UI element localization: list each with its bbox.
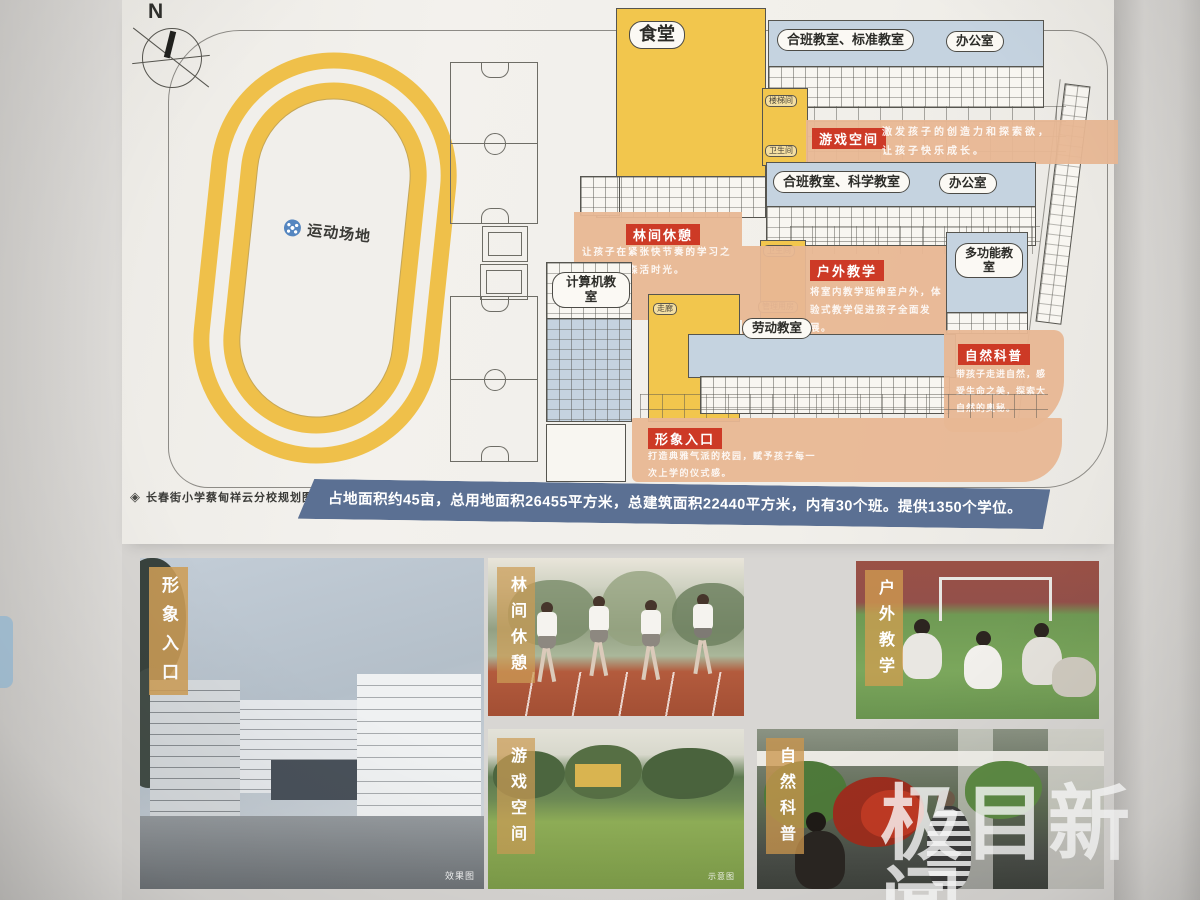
entrance-zone-title: 形象入口 — [648, 428, 722, 449]
photo-forest-label: 林间休憩 — [497, 567, 535, 683]
classroom-facade — [768, 66, 1044, 108]
compass-icon: N — [134, 2, 218, 98]
multi-room-building: 多功能教室 — [946, 232, 1028, 314]
building-right-wing — [357, 674, 481, 830]
small-building — [580, 176, 620, 216]
court-key — [481, 208, 509, 224]
photo-entrance: 形象入口 效果图 — [140, 558, 484, 889]
court-square — [480, 264, 528, 300]
photo-forest: 林间休憩 — [488, 558, 744, 716]
outdoor-zone-desc: 将室内教学延伸至户外，体验式教学促进孩子全面发展。 — [810, 284, 945, 338]
photo-nature-label: 自然科普 — [766, 738, 804, 854]
canteen-label: 食堂 — [629, 21, 685, 49]
office-label: 办公室 — [939, 173, 997, 194]
figure-body — [964, 645, 1002, 689]
building-left-wing — [150, 680, 239, 829]
photo-play-label: 游戏空间 — [497, 738, 535, 854]
child-figure — [638, 600, 664, 692]
court-square-inner — [486, 270, 522, 294]
rooftop-units — [640, 394, 1048, 418]
play-zone-desc: 激发孩子的创造力和探索欲，让孩子快乐成长。 — [882, 123, 1062, 161]
outdoor-zone-title: 户外教学 — [810, 260, 884, 281]
figure-leg — [702, 640, 712, 674]
figure-head — [1034, 623, 1049, 638]
figure-skirt — [642, 634, 660, 647]
figure-pants — [694, 628, 712, 638]
gatehouse-building — [546, 424, 626, 482]
court-square-inner — [488, 232, 522, 256]
photo-entrance-label: 形象入口 — [149, 567, 188, 695]
entrance-canopy — [271, 760, 357, 800]
play-zone-title: 游戏空间 — [812, 128, 886, 149]
figure-leg — [641, 646, 650, 680]
sci-classroom-label: 合班教室、科学教室 — [773, 171, 910, 193]
plan-caption-text: 长春街小学蔡甸祥云分校规划图 — [146, 489, 314, 505]
basketball-court — [450, 62, 538, 224]
stair-toilet-block: 楼梯间 卫生间 — [762, 88, 808, 166]
child-figure — [690, 594, 716, 686]
diamond-icon: ◈ — [130, 489, 141, 505]
sports-ball-icon — [284, 219, 303, 238]
figure-leg — [537, 648, 546, 682]
court-square — [482, 226, 528, 262]
labor-room-label: 劳动教室 — [742, 318, 812, 339]
photo-outdoor: 户外教学 — [856, 561, 1099, 719]
std-classroom-label: 合班教室、标准教室 — [777, 29, 914, 51]
labor-strip — [688, 334, 956, 378]
classroom-strip-south: 合班教室、科学教室 办公室 — [766, 162, 1036, 208]
figure-head — [976, 631, 991, 646]
entrance-zone-desc: 打造典雅气派的校园，赋予孩子每一次上学的仪式感。 — [648, 448, 816, 482]
court-key — [481, 62, 509, 78]
figure-leg — [598, 642, 608, 676]
plan-caption: ◈ 长春街小学蔡甸祥云分校规划图 — [130, 489, 314, 505]
left-edge-blue-tab — [0, 616, 13, 688]
figure-body — [902, 633, 942, 679]
figure-leg — [546, 648, 556, 682]
child-figure — [586, 596, 612, 688]
court-key — [481, 446, 509, 462]
computer-building — [546, 318, 632, 422]
background-left-margin — [0, 0, 122, 900]
photo-play-note: 示意图 — [708, 871, 735, 882]
child-figure — [534, 602, 560, 694]
toilet-label: 卫生间 — [765, 145, 797, 157]
canteen-building: 食堂 — [616, 8, 766, 178]
figure-skirt — [538, 636, 556, 649]
figure-leg — [589, 642, 598, 676]
nature-zone-title: 自然科普 — [958, 344, 1030, 365]
corridor-label: 走廊 — [653, 303, 677, 315]
figure-head — [806, 812, 826, 832]
office-label: 办公室 — [946, 31, 1004, 52]
figure-body — [589, 606, 609, 632]
plaza-ground — [140, 816, 484, 889]
basketball-court — [450, 296, 538, 462]
court-center-circle — [484, 369, 506, 391]
figure-body — [537, 612, 557, 638]
figure-leg — [650, 646, 660, 680]
building-behind-trees — [575, 764, 621, 786]
poster-photo: N 运动场地 食堂 合班教室、标准教室 — [0, 0, 1200, 900]
figure-body — [641, 610, 661, 636]
computer-room-label: 计算机教室 — [552, 272, 630, 308]
photo-entrance-note: 效果图 — [445, 869, 475, 882]
figure-leg — [693, 640, 702, 674]
background-right-margin — [1114, 0, 1200, 900]
multi-room-label: 多功能教室 — [955, 243, 1023, 278]
photo-outdoor-label: 户外教学 — [865, 570, 903, 686]
court-center-circle — [484, 133, 506, 155]
photo-play: 游戏空间 示意图 — [488, 729, 744, 889]
figure-skirt — [590, 630, 608, 643]
compass-north-label: N — [148, 0, 163, 24]
soccer-goal — [939, 577, 1052, 621]
figure-body — [693, 604, 713, 630]
classroom-strip-north: 合班教室、标准教室 办公室 — [768, 20, 1044, 68]
figure-body — [1052, 657, 1096, 697]
news-watermark: 极目新闻 — [880, 784, 1200, 900]
stairwell-label: 楼梯间 — [765, 95, 797, 107]
forest-zone-title: 林间休憩 — [626, 224, 700, 245]
